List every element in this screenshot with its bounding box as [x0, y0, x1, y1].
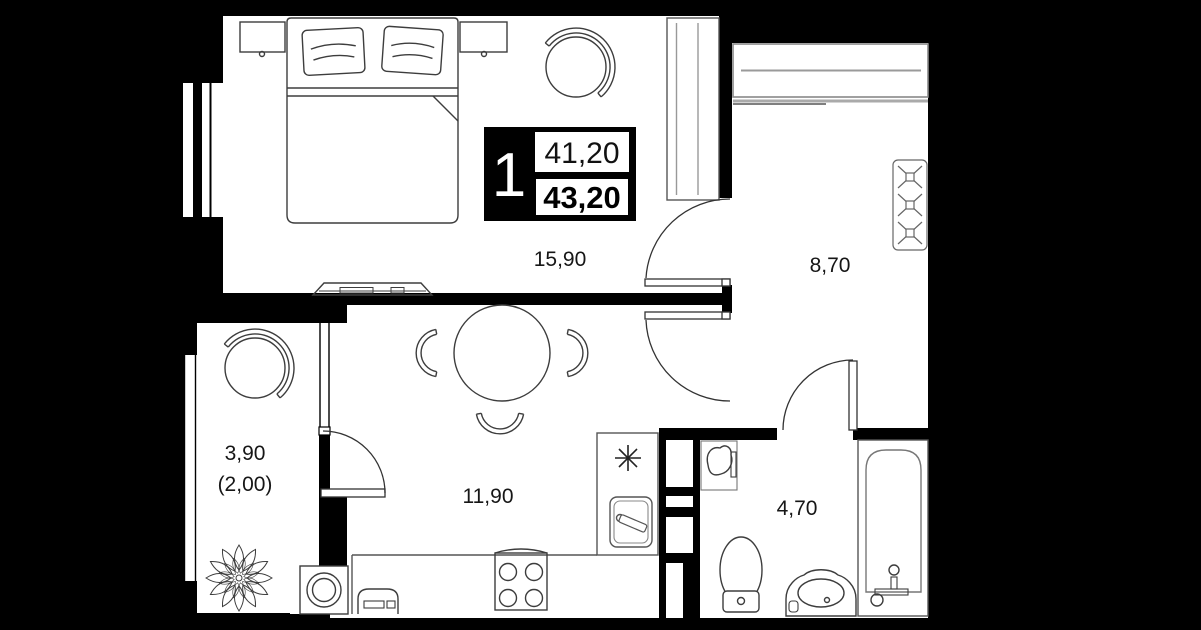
- vent-shaft-band: [666, 507, 693, 517]
- wall-bedroom-left-lower: [183, 217, 223, 303]
- washing-machine-icon: [300, 566, 348, 614]
- bathroom-door-opening: [777, 428, 853, 440]
- balcony-window-stub-bottom: [183, 581, 197, 613]
- vent-shaft-bottom-block: [683, 563, 700, 618]
- balcony-area-label: 3,90: [225, 442, 266, 465]
- room-living-floor: [330, 305, 700, 618]
- wall-bedroom-left-upper: [183, 14, 223, 83]
- wall-bathroom-top-left: [659, 428, 777, 440]
- bedroom-area-label: 15,90: [534, 248, 587, 271]
- hall-lower-strip-floor: [700, 305, 732, 428]
- unit-living-area: 41,20: [544, 137, 619, 170]
- vent-shaft-band: [666, 553, 693, 563]
- bathroom-area-label: 4,70: [777, 497, 818, 520]
- vent-shaft-left-wall: [659, 428, 666, 618]
- room-bedroom-floor: [223, 16, 719, 293]
- wall-balcony-living-lower: [319, 494, 347, 566]
- living-area-label: 11,90: [463, 485, 514, 508]
- balcony-window-glazing: [185, 328, 196, 606]
- wall-balcony-top: [183, 300, 347, 323]
- balcony-window: [183, 323, 197, 613]
- bedroom-window-outer-pane: [183, 83, 193, 217]
- vent-shaft-band: [666, 487, 693, 496]
- balcony-area-label-secondary: (2,00): [218, 473, 273, 496]
- unit-rooms-count: 1: [492, 141, 526, 210]
- bedroom-window-inner-pane: [202, 83, 223, 217]
- wall-bathroom-top-right: [853, 428, 928, 440]
- balcony-partition: [319, 323, 330, 435]
- unit-total-area: 43,20: [543, 180, 621, 215]
- balcony-window-stub-top: [183, 323, 197, 355]
- floor-plan: 15,90 8,70 11,90 4,70 3,90 (2,00) 1 41,2…: [0, 0, 1201, 630]
- hall-area-label: 8,70: [810, 254, 851, 277]
- floor-plan-canvas: 15,90 8,70 11,90 4,70 3,90 (2,00) 1 41,2…: [0, 0, 1201, 630]
- wall-doorway-cap: [722, 285, 732, 313]
- unit-badge: 1 41,20 43,20: [484, 127, 636, 221]
- wall-wardrobe-hall: [719, 14, 732, 198]
